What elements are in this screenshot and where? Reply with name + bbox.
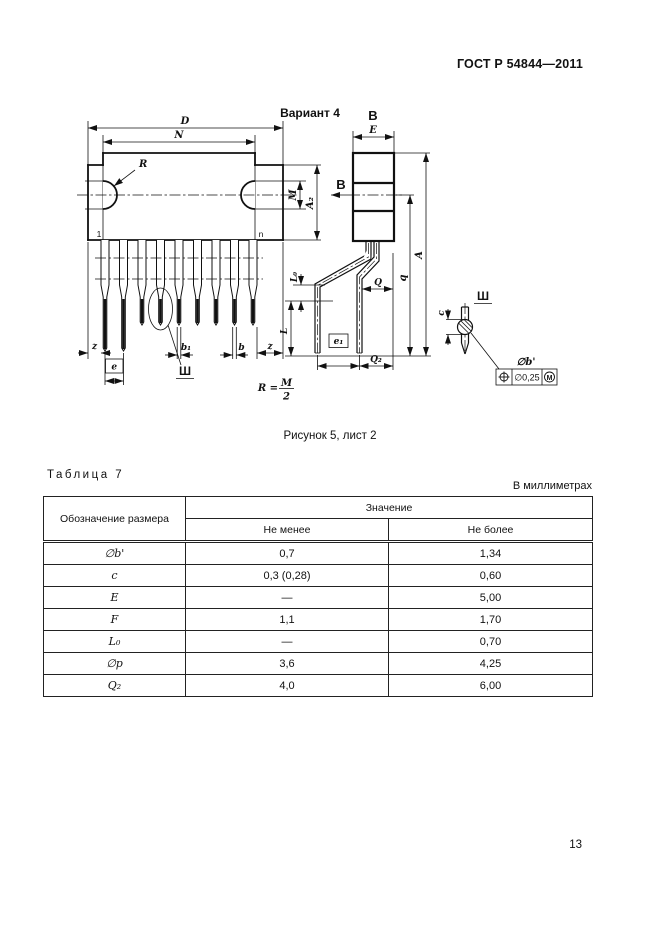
row-min: 3,6: [186, 653, 389, 675]
dim-label-q: q: [398, 275, 409, 282]
dim-label-N: N: [173, 130, 184, 141]
mmc-letter: M: [547, 375, 553, 382]
dim-label-M: M: [288, 189, 299, 202]
row-symbol: ∅p: [44, 653, 186, 675]
variant-label: Вариант 4: [280, 106, 340, 120]
tolerance-value: ∅0,25: [514, 373, 539, 383]
row-max: 4,25: [389, 653, 593, 675]
dim-label-Q: Q: [374, 278, 382, 288]
row-min: —: [186, 587, 389, 609]
col-header-symbol: Обозначение размера: [44, 497, 186, 542]
pin-number-last: n: [259, 229, 264, 239]
row-min: 0,7: [186, 542, 389, 565]
dim-label-b1: b₁: [181, 343, 191, 353]
top-view: Вариант 4 1 n: [77, 106, 340, 240]
dim-label-L0: L₀: [290, 272, 300, 283]
row-max: 1,34: [389, 542, 593, 565]
dim-label-E: E: [368, 125, 377, 136]
document-page: ГОСТ Р 54844—2011 Вариант 4: [0, 0, 661, 935]
tolerance-frame: ∅0,25 M: [496, 369, 557, 385]
row-max: 1,70: [389, 609, 593, 631]
row-symbol: c: [44, 565, 186, 587]
page-number: 13: [569, 839, 582, 851]
row-min: —: [186, 631, 389, 653]
dim-label-z-left: z: [91, 342, 98, 352]
standard-number: ГОСТ Р 54844—2011: [457, 57, 583, 71]
row-min: 0,3 (0,28): [186, 565, 389, 587]
radius-formula: R = M 2: [257, 378, 294, 403]
table-header-row-1: Обозначение размера Значение: [44, 497, 593, 519]
table-row: ∅p 3,6 4,25: [44, 653, 593, 675]
side-view-title: В: [368, 108, 377, 123]
table-title: Таблица 7: [47, 469, 124, 481]
position-tolerance-icon: [499, 372, 510, 383]
dim-label-R: R: [138, 159, 147, 170]
table-row: ∅b' 0,7 1,34: [44, 542, 593, 565]
table-row: c 0,3 (0,28) 0,60: [44, 565, 593, 587]
row-symbol: F: [44, 609, 186, 631]
col-header-max: Не более: [389, 519, 593, 542]
technical-drawing: Вариант 4 1 n: [75, 103, 635, 413]
side-view-dimensions: E A q Q L₀ L: [280, 125, 430, 370]
formula-lhs: R =: [257, 383, 278, 394]
dim-label-db: ∅b': [517, 357, 536, 368]
dim-label-A: A: [414, 251, 425, 260]
view-direction-label: В: [336, 177, 345, 192]
pin-row: [95, 240, 263, 351]
row-symbol: L₀: [44, 631, 186, 653]
formula-denominator: 2: [282, 392, 290, 403]
table-row: L₀ — 0,70: [44, 631, 593, 653]
table-units-note: В миллиметрах: [513, 480, 592, 492]
table-row: E — 5,00: [44, 587, 593, 609]
row-symbol: ∅b': [44, 542, 186, 565]
mmc-modifier-icon: M: [545, 372, 555, 382]
dim-label-L: L: [280, 328, 290, 335]
lead-cross-section: [458, 320, 473, 335]
dim-label-e: e: [111, 363, 117, 373]
row-max: 6,00: [389, 675, 593, 697]
dim-label-Q2: Q₂: [370, 355, 382, 365]
top-view-dimensions: D N R M A₂ В: [88, 116, 349, 240]
row-min: 1,1: [186, 609, 389, 631]
row-min: 4,0: [186, 675, 389, 697]
dim-label-z-right: z: [266, 342, 273, 352]
col-header-min: Не менее: [186, 519, 389, 542]
pin-number-first: 1: [97, 229, 102, 239]
figure-caption: Рисунок 5, лист 2: [50, 430, 610, 442]
row-max: 0,70: [389, 631, 593, 653]
formula-numerator: M: [280, 378, 293, 389]
dimensions-table: Обозначение размера Значение Не менее Не…: [43, 496, 593, 697]
side-view: В: [307, 108, 431, 356]
dim-label-e1: e₁: [334, 337, 344, 347]
table-row: F 1,1 1,70: [44, 609, 593, 631]
table-row: Q₂ 4,0 6,00: [44, 675, 593, 697]
col-header-value: Значение: [186, 497, 593, 519]
dim-label-c: c: [437, 310, 447, 316]
pin-dimensions: z e b₁ b z Ш: [78, 242, 294, 403]
row-max: 0,60: [389, 565, 593, 587]
detail-callout-label: Ш: [179, 364, 191, 378]
row-symbol: Q₂: [44, 675, 186, 697]
row-symbol: E: [44, 587, 186, 609]
dim-label-b: b: [238, 343, 244, 353]
detail-title: Ш: [477, 289, 489, 303]
dim-label-D: D: [180, 116, 190, 127]
detail-iii: Ш c ∅b': [437, 289, 557, 385]
row-max: 5,00: [389, 587, 593, 609]
dim-label-A2: A₂: [305, 196, 316, 210]
